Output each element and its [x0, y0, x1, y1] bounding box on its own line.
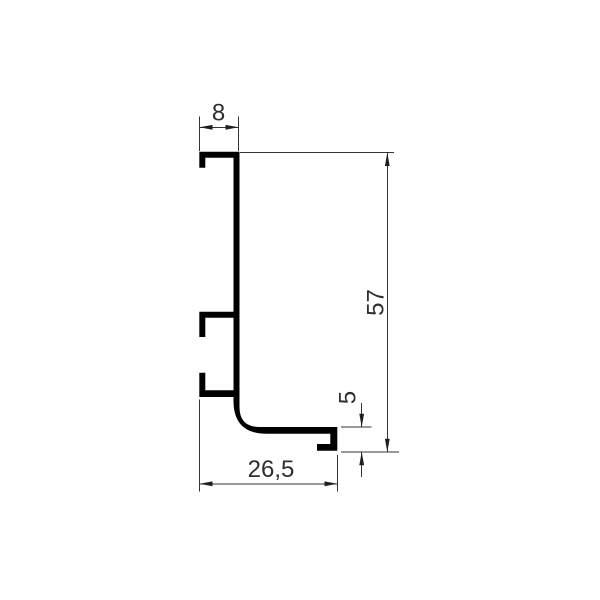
dimension-value-end-lip-height: 5: [335, 391, 362, 404]
dimension-top-width: 8: [200, 100, 239, 152]
profile-shape: [199, 152, 337, 451]
arrowhead-up: [359, 452, 364, 465]
profile-technical-drawing: 8 57 5 26,5: [0, 0, 600, 600]
arrowhead-left: [200, 481, 213, 486]
drawing-canvas: 8 57 5 26,5: [0, 0, 600, 600]
arrowhead-right: [325, 481, 338, 486]
arrowhead-down: [385, 439, 390, 452]
dimension-value-bottom-width: 26,5: [248, 456, 295, 483]
arrowhead-right: [226, 125, 239, 130]
dimension-overall-height: 57: [240, 153, 399, 452]
profile-outline: [199, 152, 337, 451]
dimension-value-overall-height: 57: [363, 289, 390, 316]
arrowhead-left: [200, 125, 213, 130]
dimension-end-lip-height: 5: [335, 391, 372, 477]
dimension-bottom-width: 26,5: [200, 400, 338, 492]
dimension-value-top-width: 8: [212, 100, 225, 127]
arrowhead-down: [359, 414, 364, 427]
arrowhead-up: [385, 153, 390, 166]
